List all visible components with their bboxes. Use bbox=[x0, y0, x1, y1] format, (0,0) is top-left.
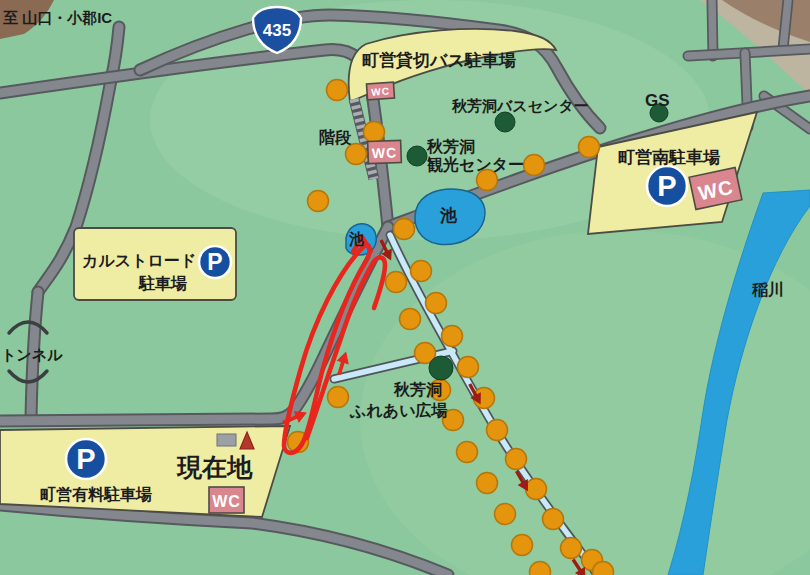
map-label-tunnel: トンネル bbox=[1, 346, 63, 363]
tree-marker bbox=[386, 272, 407, 293]
map-label-stairs: 階段 bbox=[319, 128, 352, 146]
tree-marker bbox=[457, 442, 478, 463]
tree-marker bbox=[400, 309, 421, 330]
map-sign-photo: WCWCWCWC PPP 435 至 山口・小郡IC町営貸切バス駐車場秋芳洞バス… bbox=[0, 0, 810, 575]
tree-marker bbox=[308, 191, 329, 212]
map-label-yuryo-parking: 町営有料駐車場 bbox=[40, 485, 152, 503]
tree-marker bbox=[524, 155, 545, 176]
map-label-kanko-center-2: 観光センター bbox=[426, 156, 524, 173]
map-label-fureai-2: ふれあい広場 bbox=[349, 401, 448, 420]
parking-icon: P bbox=[66, 439, 106, 479]
facility-dot bbox=[429, 356, 453, 380]
tree-marker bbox=[526, 479, 547, 500]
wc-label: WC bbox=[372, 144, 398, 161]
map-label-minami-parking: 町営南駐車場 bbox=[618, 148, 720, 167]
facility-dot bbox=[495, 112, 515, 132]
tree-marker bbox=[512, 535, 533, 556]
parking-icon-letter: P bbox=[207, 249, 222, 275]
tree-marker bbox=[328, 387, 349, 408]
tree-marker bbox=[394, 219, 415, 240]
map-label-karst-road-2: 駐車場 bbox=[138, 274, 187, 292]
tree-marker bbox=[506, 449, 527, 470]
parking-icon-letter: P bbox=[76, 443, 95, 475]
tree-marker bbox=[346, 144, 367, 165]
tree-marker bbox=[364, 122, 385, 143]
map-label-bus-parking: 町営貸切バス駐車場 bbox=[362, 51, 516, 70]
map-label-inagawa-river: 稲川 bbox=[751, 281, 784, 298]
current-location-marker bbox=[217, 432, 254, 449]
map-label-pond-small: 池 bbox=[348, 230, 364, 247]
tree-marker bbox=[487, 420, 508, 441]
tree-marker bbox=[442, 326, 463, 347]
map-label-dest-yamaguchi: 至 山口・小郡IC bbox=[3, 9, 112, 26]
parking-icon-letter: P bbox=[657, 170, 676, 202]
tree-marker bbox=[327, 80, 348, 101]
wc-label: WC bbox=[371, 86, 390, 98]
tree-marker bbox=[561, 538, 582, 559]
tree-marker bbox=[426, 293, 447, 314]
route-number: 435 bbox=[263, 21, 291, 40]
map-label-pond-big: 池 bbox=[439, 206, 458, 225]
wc-label: WC bbox=[212, 493, 241, 510]
map-label-gs: GS bbox=[645, 91, 670, 110]
map-label-bus-center: 秋芳洞バスセンター bbox=[451, 97, 589, 114]
map-label-fureai-1: 秋芳洞 bbox=[393, 381, 442, 398]
tree-marker bbox=[411, 261, 432, 282]
tree-marker bbox=[530, 562, 551, 575]
parking-icon: P bbox=[647, 166, 687, 206]
tree-marker bbox=[593, 562, 614, 575]
akiyoshido-area-map: WCWCWCWC PPP 435 至 山口・小郡IC町営貸切バス駐車場秋芳洞バス… bbox=[0, 0, 810, 575]
tree-marker bbox=[458, 357, 479, 378]
wc-marker: WC bbox=[209, 487, 244, 513]
tree-marker bbox=[495, 504, 516, 525]
wc-marker: WC bbox=[368, 140, 402, 163]
map-label-kanko-center-1: 秋芳洞 bbox=[426, 138, 475, 155]
parking-icon: P bbox=[199, 246, 231, 278]
wc-marker: WC bbox=[366, 82, 394, 100]
facility-dot bbox=[407, 146, 427, 166]
tree-marker bbox=[477, 473, 498, 494]
tree-marker bbox=[543, 509, 564, 530]
tree-marker bbox=[579, 137, 600, 158]
map-label-genzaichi: 現在地 bbox=[176, 453, 253, 481]
map-label-karst-road-1: カルストロード bbox=[82, 252, 196, 269]
